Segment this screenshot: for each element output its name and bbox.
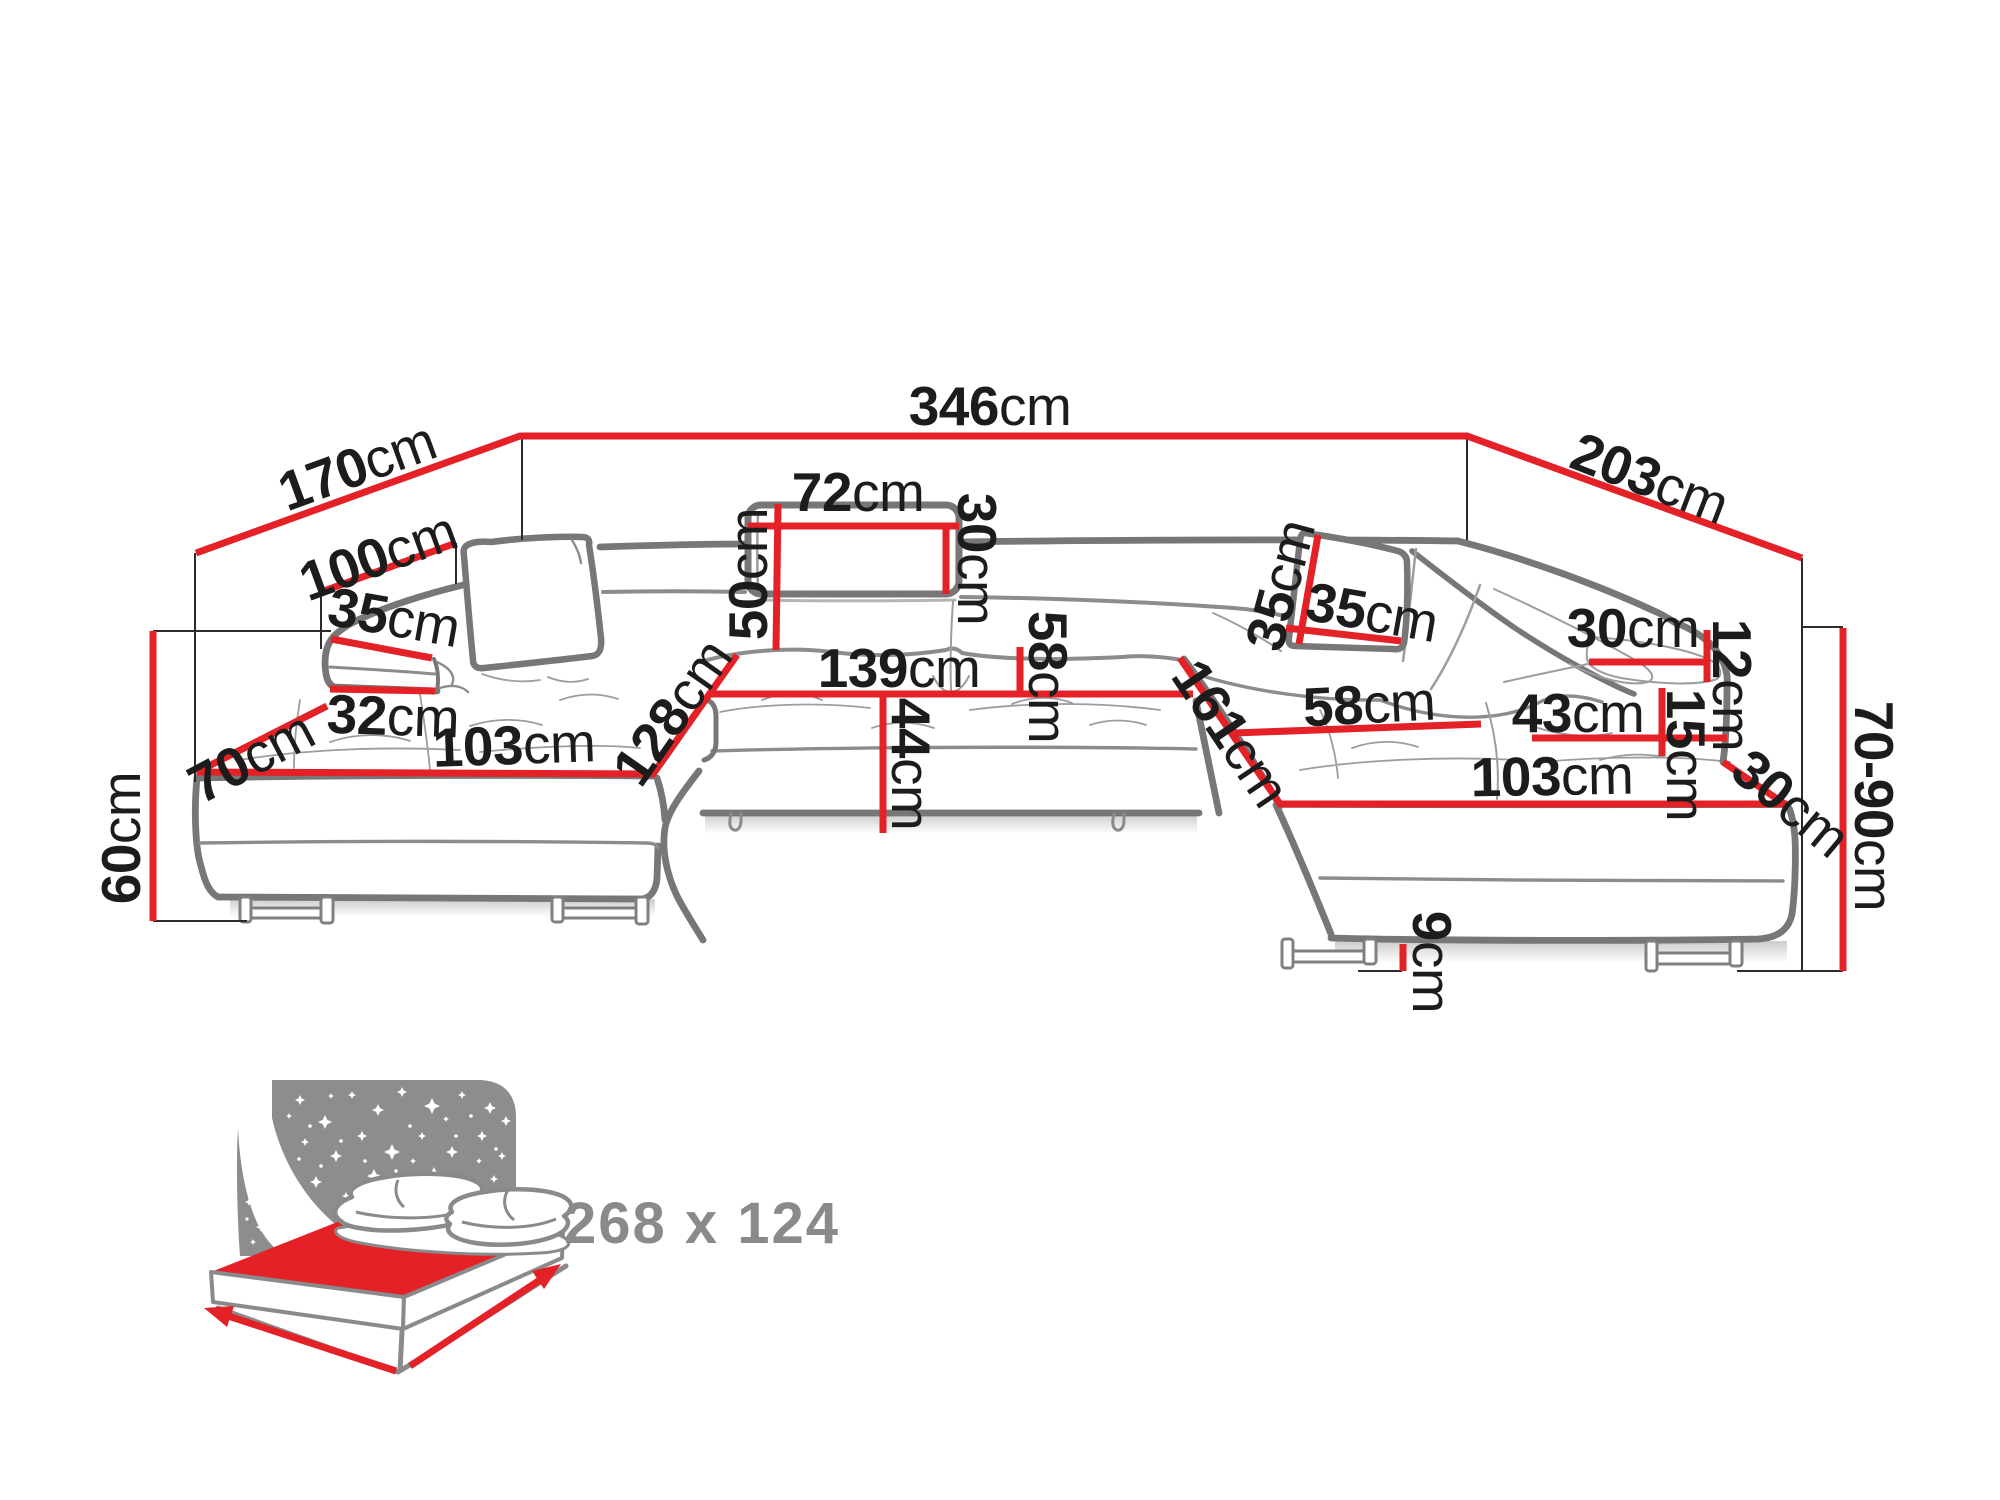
svg-text:50cm: 50cm (717, 508, 779, 641)
svg-text:70-90cm: 70-90cm (1843, 701, 1905, 912)
svg-text:72cm: 72cm (792, 461, 925, 523)
svg-text:9cm: 9cm (1401, 911, 1463, 1013)
svg-text:30cm: 30cm (946, 493, 1008, 626)
svg-text:139cm: 139cm (818, 637, 981, 699)
svg-text:346cm: 346cm (909, 375, 1072, 437)
svg-text:30cm: 30cm (1567, 597, 1700, 659)
svg-text:58cm: 58cm (1017, 611, 1079, 744)
svg-text:60cm: 60cm (90, 772, 152, 905)
svg-text:58cm: 58cm (1301, 670, 1437, 739)
svg-text:103cm: 103cm (1470, 744, 1634, 809)
svg-text:43cm: 43cm (1512, 682, 1645, 744)
svg-text:15cm: 15cm (1655, 689, 1717, 822)
svg-text:44cm: 44cm (880, 698, 942, 831)
svg-text:268 x 124: 268 x 124 (564, 1191, 840, 1256)
svg-text:103cm: 103cm (432, 711, 597, 779)
